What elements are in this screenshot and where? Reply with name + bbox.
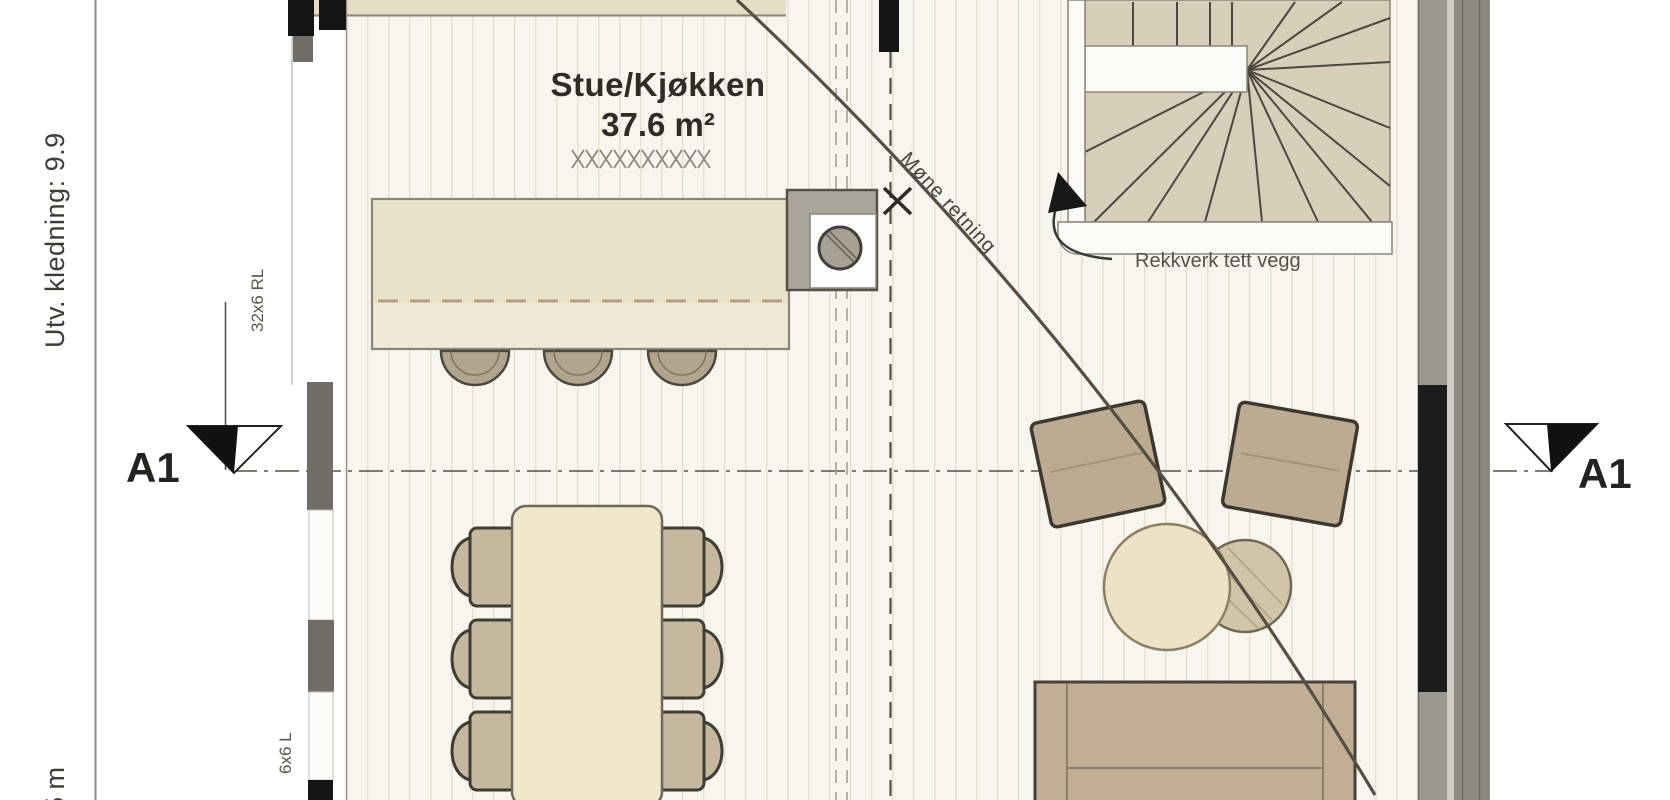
reference-dashed-lines xyxy=(836,0,891,800)
staircase xyxy=(1058,0,1392,254)
armchair-left xyxy=(1030,400,1166,528)
section-label-right: A1 xyxy=(1578,450,1632,498)
coffee-tables xyxy=(1104,524,1291,650)
kitchen-counter xyxy=(372,199,789,349)
railing-annotation: Rekkverk tett vegg xyxy=(1135,250,1301,273)
room-area: 37.6 m² xyxy=(488,106,828,144)
framing-note-lower: 6x6 L xyxy=(276,696,296,774)
wall-stub-top xyxy=(879,0,899,52)
top-counter-band xyxy=(290,0,786,16)
framing-note-upper: 32x6 RL xyxy=(248,212,268,332)
section-label-left: A1 xyxy=(126,444,180,492)
right-wall-solid-segment xyxy=(1418,385,1447,692)
upper-cabinet-hatch xyxy=(572,150,710,168)
ridge-x-marker xyxy=(884,188,911,214)
left-wall xyxy=(288,0,347,800)
section-marker-left xyxy=(188,426,281,473)
sofa xyxy=(1035,682,1355,800)
armchair-right xyxy=(1222,401,1359,526)
dining-table xyxy=(512,506,662,800)
bottom-dimension: 5 m xyxy=(40,742,71,800)
bar-stools xyxy=(441,351,716,385)
sink-unit xyxy=(787,190,877,290)
right-wall xyxy=(1418,0,1490,800)
room-name: Stue/Kjøkken xyxy=(488,66,828,104)
floor-plan-svg xyxy=(0,0,1670,800)
floor-plan: Stue/Kjøkken 37.6 m² Rekkverk tett vegg … xyxy=(0,0,1670,800)
stair-landing xyxy=(1085,46,1247,92)
cladding-annotation: Utv. kledning: 9.9 xyxy=(40,0,71,348)
